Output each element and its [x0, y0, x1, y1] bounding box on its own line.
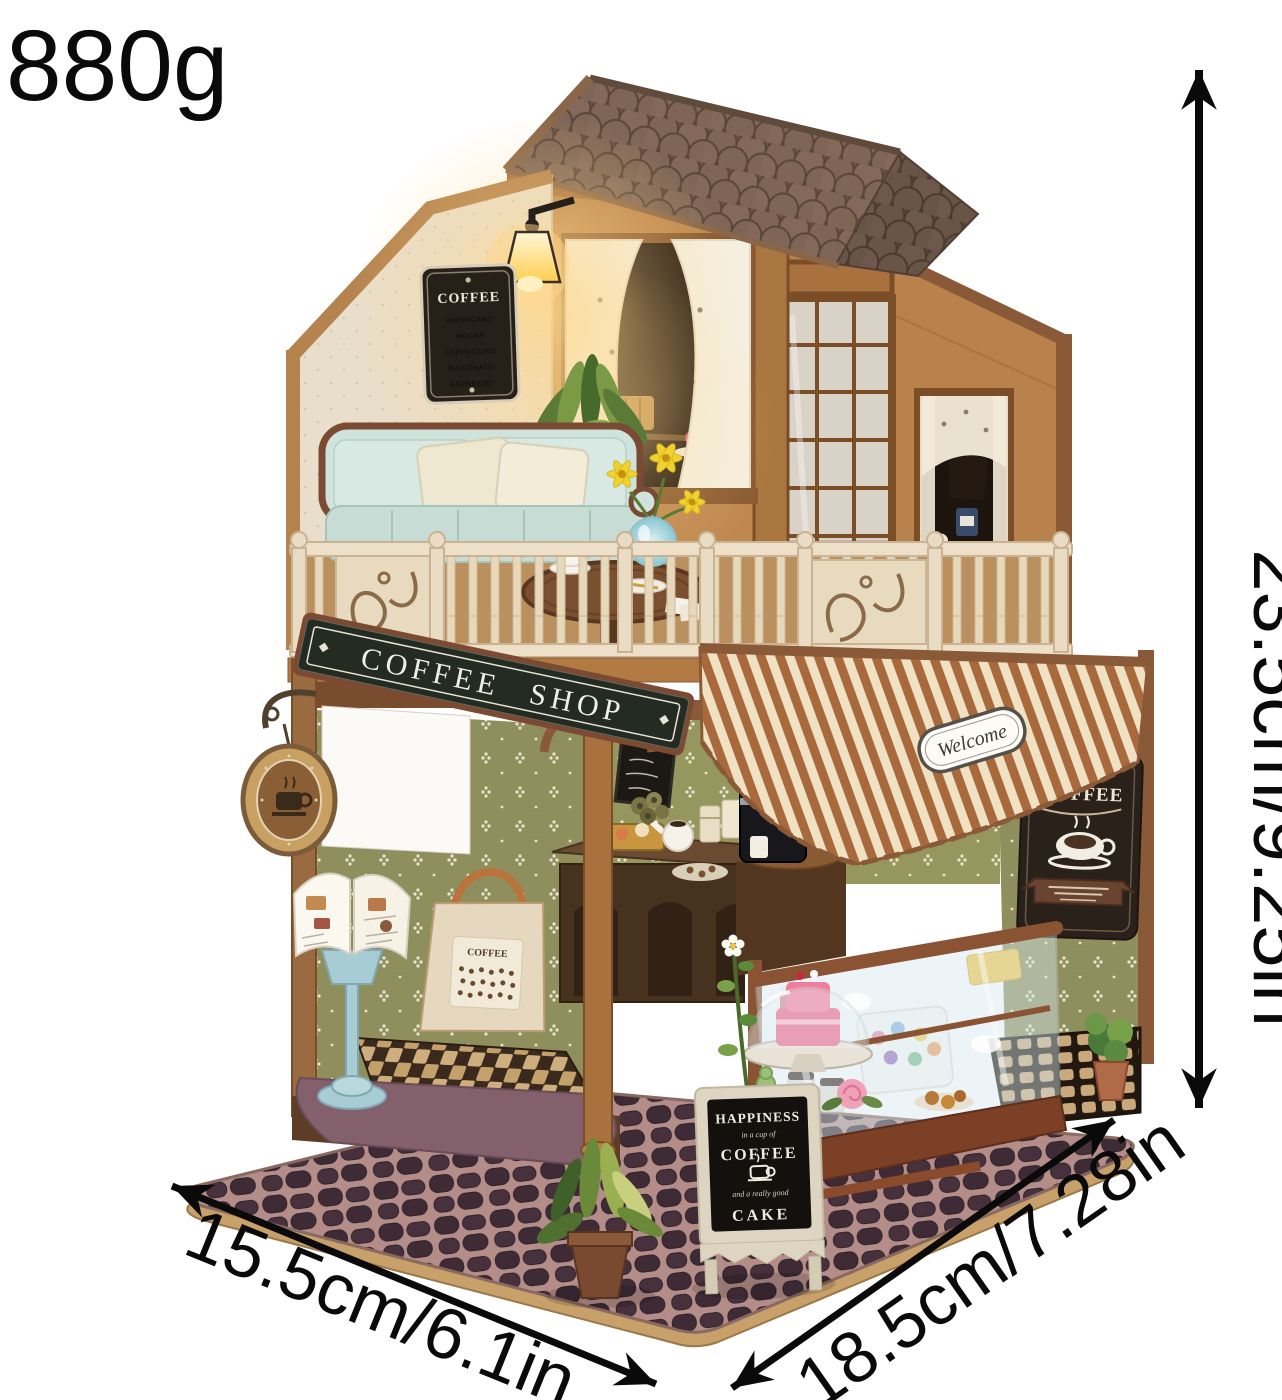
aframe-cake: CAKE: [732, 1206, 791, 1225]
wall-sign-banner: [1022, 878, 1135, 906]
paper-cup: [700, 806, 720, 842]
railing-scroll-panel: [808, 560, 926, 650]
aframe-headline: HAPPINESS: [715, 1109, 800, 1127]
product-photo: COFFEE AMERICANO MOCHA CAPPUCCINO MACCHI…: [0, 0, 1282, 1400]
aframe-script-top: in a cup of: [741, 1129, 777, 1139]
menu-title: COFFEE: [437, 290, 500, 307]
weight-label: 880g: [6, 10, 228, 122]
dollhouse: COFFEE AMERICANO MOCHA CAPPUCCINO MACCHI…: [243, 78, 1154, 1308]
menu-item: MOCHA: [456, 333, 485, 341]
height-label: 23.5cm/9.25in: [1237, 549, 1282, 1026]
espresso-cup: [750, 836, 768, 858]
aframe-coffee: COFFEE: [720, 1145, 797, 1165]
tote-label: COFFEE: [467, 947, 508, 960]
menu-board: COFFEE AMERICANO MOCHA CAPPUCCINO MACCHI…: [421, 264, 520, 403]
menu-item: ESPRESSO: [450, 380, 493, 388]
